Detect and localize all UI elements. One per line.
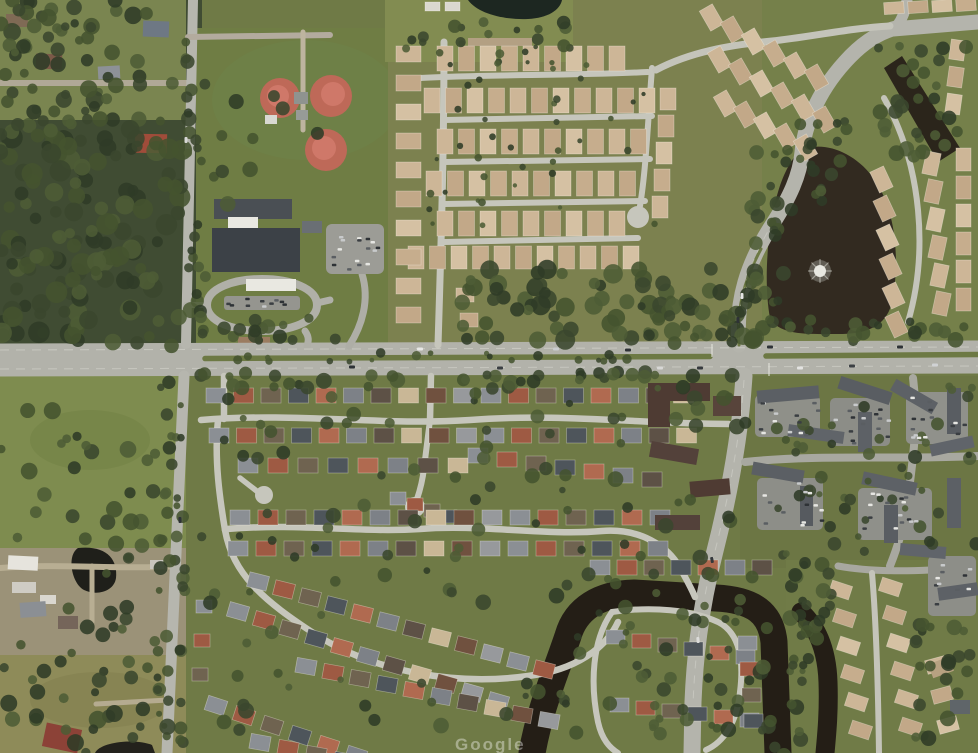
condo-trees-tree: [739, 417, 751, 429]
dirt-area-trees-tree: [109, 622, 119, 632]
lake-east-trees-tree: [799, 557, 811, 569]
subdiv-street-5: [444, 238, 638, 242]
west-road-strip-tree: [160, 489, 170, 499]
forest-main-tree: [50, 160, 71, 181]
bottomright-corner-trees-tree: [940, 711, 956, 727]
pond-east-col-c-house: [956, 288, 971, 311]
apartment-lot-cars-6-car: [935, 603, 940, 606]
hood-street2-south-house: [424, 541, 444, 556]
bottomleft-corner-trees-tree: [37, 664, 52, 679]
apartment-lot-cars-1-car: [797, 421, 802, 424]
subdivision-buffer-tree: [612, 326, 628, 342]
northeast-canal-trees-tree: [913, 94, 923, 104]
nsub-row-6-house: [451, 246, 467, 269]
subdivision-yard-trees-tree: [553, 119, 559, 125]
bottomleft-field-trees-tree: [123, 513, 140, 530]
main-road-south-strip-tree: [516, 377, 526, 387]
forest-top-tree: [27, 84, 37, 94]
apartment-lot-cars-4-car: [819, 509, 824, 512]
south-hood-trees-tree: [734, 606, 743, 615]
northeast-road-strip-tree: [840, 123, 852, 135]
nsub-row-3-house: [480, 129, 496, 154]
apartment-lot-cars-6-car: [940, 571, 945, 574]
apartment-lot-cars-5-car: [904, 496, 909, 499]
nsub-row-3-house: [523, 129, 539, 154]
hood-mid-b-house: [642, 472, 662, 487]
subdivision-yard-trees-tree: [631, 99, 636, 104]
condo-trees-tree: [860, 547, 869, 556]
forest-main-tree: [50, 206, 61, 217]
subdivision-buffer-tree: [619, 294, 634, 309]
bottomleft-corner-trees-tree: [136, 722, 145, 731]
bottomleft-field-trees-tree: [68, 461, 81, 474]
south-hood-trees-tree: [689, 418, 703, 432]
condo-trees-tree: [782, 436, 790, 444]
subdivision-yard-trees-tree: [553, 95, 561, 103]
south-hood-trees-tree: [330, 576, 341, 587]
apartment-lot-cars-1-car: [816, 409, 821, 412]
corner-house-2: [950, 700, 970, 714]
subdivision-buffer-tree: [712, 284, 728, 300]
nsub-row-4-house: [577, 171, 593, 196]
road-car: [697, 367, 703, 370]
school-west-edge-tree: [181, 38, 190, 47]
nsub-row-1-house: [459, 46, 475, 71]
bottomleft-corner-trees-tree: [28, 675, 37, 684]
horseshoe-trees-tree: [714, 701, 723, 710]
forest-main-tree: [15, 187, 29, 201]
south-hood-trees-tree: [622, 502, 633, 513]
apartment-lot-cars-2-car: [861, 417, 866, 420]
subdivision-yard-trees-tree: [578, 75, 584, 81]
forest-main-tree: [62, 114, 75, 127]
forest-top-tree: [104, 45, 120, 61]
south-hood-trees-tree: [595, 609, 602, 616]
west-road-strip-tree: [176, 510, 189, 523]
condo-trees-tree: [897, 463, 906, 472]
apartment-lot-cars-3-car: [911, 428, 916, 431]
apartment-lot-cars-5-car: [868, 516, 873, 519]
south-hood-trees-tree: [408, 514, 422, 528]
median-trees-tree: [596, 358, 601, 363]
subdivision-buffer-tree: [490, 282, 504, 296]
subdivision-yard-trees-tree: [533, 45, 538, 50]
subdivision-yard-trees-tree: [641, 92, 645, 96]
condo-trees-tree: [828, 421, 836, 429]
south-hood-trees-tree: [573, 647, 586, 660]
south-hood-trees-tree: [423, 567, 430, 574]
school-west-edge-tree: [181, 91, 192, 102]
south-hood-trees-tree: [285, 684, 292, 691]
south-hood-trees-tree: [359, 700, 371, 712]
west-road-column-house: [192, 668, 208, 681]
south-hood-trees-tree: [531, 410, 545, 424]
subdivision-yard-trees-tree: [443, 190, 448, 195]
intersection-nw-trees-tree: [638, 302, 646, 310]
hood-backs-row-house: [564, 388, 584, 403]
bottomright-corner-trees-tree: [941, 656, 956, 671]
hood-street2-north-house: [370, 510, 390, 525]
nsub-row-4-house: [598, 171, 614, 196]
golf-trees-tree: [495, 49, 504, 58]
apartment-lot-cars-5-car: [862, 527, 867, 530]
forest-main-tree: [96, 213, 118, 235]
condo-trees-tree: [858, 401, 869, 412]
apartment-lot-cars-6-car: [935, 577, 940, 580]
south-hood-trees-tree: [654, 385, 661, 392]
west-road-strip-tree: [177, 581, 188, 592]
forest-main-tree: [121, 120, 140, 139]
rural-house-3: [143, 21, 170, 38]
main-road-south-strip-tree: [461, 375, 470, 384]
school-loop-cars-car: [274, 299, 279, 302]
horseshoe-trees-tree: [688, 613, 701, 626]
nsub-row-4-house: [491, 171, 507, 196]
nsub-row-5-house: [523, 211, 539, 236]
apartment-lot-cars-6-car: [937, 583, 942, 586]
south-hood-trees-tree: [610, 578, 621, 589]
forest-top-tree: [166, 77, 179, 90]
south-hood-trees-tree: [264, 425, 277, 438]
south-hood-trees-tree: [263, 509, 273, 519]
south-hood-trees-tree: [236, 532, 243, 539]
main-road-south-strip-tree: [387, 370, 399, 382]
main-road-south-strip-tree: [226, 378, 240, 392]
subdivision-buffer-tree: [655, 276, 671, 292]
hood-backs-row-house: [399, 388, 419, 403]
south-hood-trees-tree: [197, 532, 206, 541]
main-road-south-strip-tree: [364, 382, 374, 392]
forest-top-tree: [70, 19, 78, 27]
bottomleft-field-trees-tree: [124, 487, 135, 498]
apartment-lot-cars-4-car: [813, 504, 818, 507]
west-road-strip-tree: [176, 698, 185, 707]
nsub-row-2-house: [639, 88, 655, 113]
school-south-edge-tree: [273, 330, 287, 344]
bottomleft-corner-trees-tree: [106, 705, 123, 722]
forest-top-tree: [140, 7, 153, 20]
main-road-south-strip-tree: [198, 367, 211, 380]
south-hood-trees-tree: [620, 539, 630, 549]
school-loop-cars-car: [245, 298, 250, 301]
forest-top-tree: [86, 22, 97, 33]
hood-street2-south-house: [480, 541, 500, 556]
subdivision-yard-trees-tree: [550, 66, 556, 72]
northeast-road-strip-tree: [833, 137, 842, 146]
nsub-row-5-house: [588, 211, 604, 236]
condo-trees-tree: [924, 536, 935, 547]
condo-trees-tree: [904, 472, 912, 480]
south-hood-trees-tree: [326, 508, 341, 523]
school-east-lot-cars-car: [370, 241, 375, 244]
condo-trees-tree: [966, 452, 972, 458]
forest-main-tree: [6, 258, 18, 270]
school-west-edge-tree: [199, 79, 210, 90]
condo-trees-tree: [968, 384, 976, 392]
bottomright-corner-trees-tree: [910, 635, 923, 648]
subdivision-yard-trees-tree: [448, 62, 453, 67]
condo-trees-tree: [844, 494, 856, 506]
south-hood-trees-tree: [273, 669, 282, 678]
hood-backs-row-house: [371, 388, 391, 403]
road-car: [185, 137, 188, 143]
hood-mid-a-house: [298, 458, 318, 473]
bottomleft-corner-trees-tree: [61, 724, 72, 735]
hood-street2-south-house: [508, 541, 528, 556]
northeast-road-strip-tree: [825, 168, 838, 181]
south-hood-trees-tree: [619, 639, 628, 648]
horseshoe-trees-tree: [650, 701, 660, 711]
horseshoe-trees-tree: [649, 719, 659, 729]
forest-main-tree: [67, 239, 81, 253]
south-hood-trees-tree: [623, 629, 630, 636]
forest-top-tree: [81, 54, 93, 66]
subdivision-yard-trees-tree: [508, 144, 514, 150]
apartment-lot-cars-2-car: [852, 442, 857, 445]
forest-top-tree: [43, 32, 54, 43]
condo-trees-tree: [783, 550, 790, 557]
hood-backs-row-house: [619, 388, 639, 403]
bottomright-corner-trees-tree: [940, 673, 953, 686]
subdivision-buffer-tree: [555, 330, 575, 350]
apartment-lot-cars-1-car: [761, 432, 766, 435]
golf-white-pair-house: [445, 2, 460, 11]
main-road-south-strip-tree: [527, 375, 541, 389]
bottomleft-corner-trees-tree: [55, 655, 67, 667]
nsub-row-4-house: [620, 171, 636, 196]
nsub-row-6-house: [580, 246, 596, 269]
horseshoe-trees-tree: [744, 675, 754, 685]
school-east-lot-cars-car: [365, 263, 370, 266]
pond-south-strip-tree: [805, 315, 816, 326]
bottomleft-field-trees-tree: [108, 536, 124, 552]
subdiv-street-2: [444, 116, 652, 120]
main-road-south-strip-tree: [316, 373, 332, 389]
hood-bottom-edge-2-house: [249, 733, 271, 751]
school-west-edge-tree: [187, 247, 195, 255]
bottomright-corner-trees-tree: [925, 661, 936, 672]
south-hood-trees-tree: [603, 696, 618, 711]
horseshoe-trees-tree: [769, 742, 780, 753]
school-east-lot-cars-car: [366, 238, 371, 241]
main-road-south-strip-tree: [725, 368, 740, 383]
school-field-scatter-tree: [242, 162, 258, 178]
nsub-west-column-house: [396, 104, 421, 120]
median-trees-tree: [376, 348, 386, 358]
apartment-lot-cars-5-car: [914, 520, 919, 523]
condo-trees-tree: [824, 521, 836, 533]
school-east-parking-lot: [326, 224, 384, 274]
bottomright-corner-trees-tree: [915, 662, 924, 671]
apartment-lot-cars-2-car: [833, 419, 838, 422]
hood-row-south-of-street-house: [594, 428, 614, 443]
median-trees-tree: [508, 357, 514, 363]
nsub-west-column-house: [396, 75, 421, 91]
west-road-strip-tree: [157, 384, 164, 391]
hood-street2-north-house: [426, 510, 446, 525]
bottomleft-corner-trees-tree: [136, 702, 150, 716]
west-road-strip-tree: [175, 645, 186, 656]
pond-west-strip-tree: [749, 236, 763, 250]
south-hood-trees-tree: [408, 463, 420, 475]
south-hood-trees-tree: [246, 588, 253, 595]
south-hood-trees-tree: [608, 413, 620, 425]
school-east-lot-cars-car: [341, 239, 346, 242]
condo-trees-tree: [771, 422, 783, 434]
subdivision-buffer-tree: [603, 264, 623, 284]
culdesac-ring-houses-house: [390, 492, 406, 505]
topright-road-east: [893, 22, 978, 29]
forest-main-tree: [11, 283, 23, 295]
pond-south-strip-tree: [821, 327, 831, 337]
hood-street2-north-house: [538, 510, 558, 525]
dirt-area-trees-tree: [103, 606, 118, 621]
median-trees-tree: [370, 358, 375, 363]
apartment-lot-cars-1-car: [804, 434, 809, 437]
south-hood-trees-tree: [222, 393, 234, 405]
northeast-canal-trees-tree: [928, 93, 940, 105]
apartment-lot-cars-4-car: [781, 511, 786, 514]
south-hood-trees-tree: [233, 724, 245, 736]
median-trees-tree: [533, 351, 543, 361]
culdesac-bulb-1: [627, 206, 649, 228]
golf-trees-tree: [557, 39, 570, 52]
pond-south-strip-tree: [785, 321, 796, 332]
forest-top-tree: [66, 0, 82, 15]
nsub-row-6-house: [559, 246, 575, 269]
south-hood-trees-tree: [265, 625, 279, 639]
horseshoe-trees-tree: [574, 633, 582, 641]
apartment-lot-cars-4-car: [803, 491, 808, 494]
road-car: [797, 367, 803, 370]
bottomleft-corner-trees-tree: [159, 719, 175, 735]
forest-main-tree: [22, 163, 43, 184]
south-hood-trees-tree: [378, 568, 392, 582]
forest-main-tree: [135, 263, 146, 274]
dirt-area-trees-tree: [63, 603, 75, 615]
forest-top-tree: [11, 48, 19, 56]
apartment-lot-cars-5-car: [901, 501, 906, 504]
northeast-canal-trees-tree: [938, 139, 951, 152]
subdivision-yard-trees-tree: [555, 147, 562, 154]
bottomleft-field-trees-tree: [66, 509, 80, 523]
forest-main-tree: [147, 271, 159, 283]
forest-top-tree: [33, 53, 51, 71]
south-hood-trees-tree: [563, 506, 572, 515]
south-hood-trees-tree: [674, 498, 682, 506]
hood-street2-north-house: [510, 510, 530, 525]
northeast-canal-trees-tree: [936, 42, 950, 56]
south-hood-trees-tree: [525, 468, 540, 483]
horseshoe-ring-right-house: [744, 714, 763, 728]
subdivision-buffer-tree: [531, 266, 545, 280]
bottomleft-corner-trees-tree: [29, 708, 44, 723]
school-west-edge-tree: [184, 108, 193, 117]
horseshoe-trees-tree: [700, 602, 708, 610]
hood-row-south-of-street-house: [429, 428, 449, 443]
apartment-11: [884, 505, 898, 543]
south-hood-trees-tree: [499, 707, 513, 721]
condo-trees-tree: [827, 440, 836, 449]
subdivision-buffer-tree: [475, 330, 489, 344]
south-hood-trees-tree: [577, 546, 585, 554]
pond-east-col-c-house: [956, 148, 971, 171]
nsub-row-6-house: [516, 246, 532, 269]
horseshoe-trees-tree: [721, 722, 737, 738]
south-hood-trees-tree: [532, 519, 540, 527]
west-road-strip-tree: [179, 564, 189, 574]
forest-main-tree: [53, 230, 67, 244]
main-road-south-strip-tree: [483, 370, 492, 379]
west-road-strip-tree: [167, 432, 175, 440]
hood-mid-a-house: [418, 458, 438, 473]
west-road-strip-tree: [175, 735, 185, 745]
dirt-area-trees-tree: [123, 552, 134, 563]
apartment-lot-cars-3-car: [921, 418, 926, 421]
school-west-edge-tree: [193, 262, 204, 273]
forest-top-tree: [20, 69, 29, 78]
forest-main-tree: [132, 141, 143, 152]
west-road-strip-tree: [157, 535, 167, 545]
google-watermark: Google: [455, 735, 526, 753]
forest-top-tree: [81, 107, 89, 115]
school-east-lot-cars-car: [355, 260, 360, 263]
apartment-lot-cars-2-car: [861, 423, 866, 426]
lake-east-trees-tree: [788, 661, 797, 670]
forest-main-tree: [65, 272, 81, 288]
median-trees-tree: [622, 354, 631, 363]
road-car: [657, 367, 663, 370]
median-trees-tree: [604, 350, 613, 359]
forest-main-tree: [86, 225, 98, 237]
apartment-lot-cars-5-car: [868, 504, 873, 507]
subdivision-buffer-tree: [631, 262, 647, 278]
ball-backstop-1: [294, 92, 308, 104]
horseshoe-trees-tree: [632, 661, 642, 671]
hood-street2-south-house: [340, 541, 360, 556]
satellite-map-canvas[interactable]: Google: [0, 0, 978, 753]
median-trees-tree: [233, 355, 242, 364]
south-hood-trees-tree: [521, 678, 533, 690]
nsub-row-5-house: [502, 211, 518, 236]
south-hood-trees-tree: [545, 429, 555, 439]
pond-west-strip-tree: [773, 296, 782, 305]
bottomleft-corner-trees-tree: [91, 688, 99, 696]
subdivision-yard-trees-tree: [435, 157, 439, 161]
apartment-lot-cars-3-car: [953, 422, 958, 425]
south-hood-trees-tree: [469, 387, 481, 399]
hood-curve-row-3-house: [511, 705, 533, 723]
south-hood-trees-tree: [311, 544, 319, 552]
golf-trees-tree: [419, 38, 427, 46]
hood-mid-b-house: [497, 452, 517, 467]
subdivision-buffer-tree: [510, 302, 524, 316]
horseshoe-trees-tree: [659, 642, 673, 656]
north-lake-row-house: [671, 560, 691, 575]
field-blotch-1: [30, 410, 150, 470]
forest-main-tree: [82, 114, 93, 125]
road-car: [417, 348, 423, 351]
hood-street2-north-house: [342, 510, 362, 525]
golf-trees-tree: [407, 35, 416, 44]
hood-street2-south-house: [536, 541, 556, 556]
south-hood-trees-tree: [485, 481, 496, 492]
forest-main-tree: [133, 199, 153, 219]
golf-trees-tree: [484, 30, 492, 38]
bottomleft-field-trees-tree: [120, 441, 137, 458]
subdivision-yard-trees-tree: [480, 173, 487, 180]
pond-west-strip-tree: [776, 266, 791, 281]
